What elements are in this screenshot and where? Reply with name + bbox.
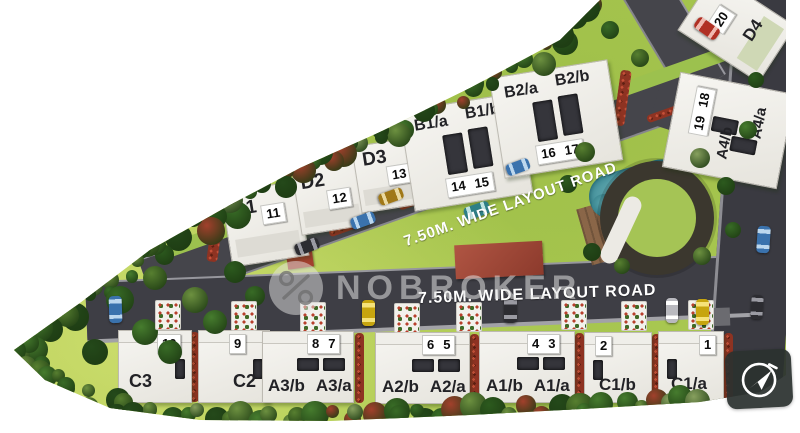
plot-A1: 4 3 A1/b A1/a xyxy=(479,331,575,403)
plot-number-text: 7 xyxy=(328,336,335,352)
tree-icon xyxy=(685,389,710,414)
plot-number-text: 12 xyxy=(331,189,348,207)
plot-label: B2/b xyxy=(554,67,591,90)
tree-icon xyxy=(540,37,552,49)
tree-icon xyxy=(131,254,144,267)
flower-planter xyxy=(561,300,587,330)
tree-icon xyxy=(375,131,388,144)
tree-icon xyxy=(82,384,95,397)
flower-planter xyxy=(155,300,181,330)
plot-number: 9 xyxy=(229,334,246,354)
plot-number-text: 2 xyxy=(600,338,607,354)
tree-icon xyxy=(82,339,108,365)
tree-icon xyxy=(57,377,75,395)
tree-icon xyxy=(505,60,518,73)
parking-slot xyxy=(297,358,319,371)
plot-number-text: 19 xyxy=(691,115,709,132)
parking-slot xyxy=(412,359,434,372)
flower-planter xyxy=(621,301,647,331)
plot-labels: A1/b A1/a xyxy=(486,376,570,396)
plot-number-text: 16 xyxy=(540,145,557,163)
plot-label: A1/b xyxy=(486,376,523,396)
flower-planter xyxy=(394,303,420,333)
navigation-arrow-icon xyxy=(735,355,783,403)
tree-icon xyxy=(548,22,574,48)
tree-icon xyxy=(158,340,182,364)
tree-icon xyxy=(291,158,316,183)
tree-icon xyxy=(190,403,204,417)
tree-icon xyxy=(143,266,167,290)
tree-icon xyxy=(275,176,296,197)
plot-label: C3 xyxy=(129,371,152,392)
tree-icon xyxy=(501,407,517,423)
plot-number: 4 3 xyxy=(527,334,560,354)
tree-icon xyxy=(203,310,227,334)
plot-number-text: 6 xyxy=(427,337,434,353)
plot-number-text: 4 xyxy=(532,336,539,352)
tree-icon xyxy=(243,185,257,199)
plot-number-text: 13 xyxy=(391,165,408,183)
tree-icon xyxy=(3,339,27,363)
car-icon xyxy=(109,296,123,323)
car-icon xyxy=(362,300,375,326)
tree-icon xyxy=(748,72,764,88)
parking-slot xyxy=(438,359,460,372)
tree-icon xyxy=(84,288,97,301)
tree-icon xyxy=(614,258,630,274)
parking-slot xyxy=(442,132,468,175)
tree-icon xyxy=(347,404,363,420)
tree-icon xyxy=(601,21,619,39)
tree-icon xyxy=(486,77,499,90)
parking-slot xyxy=(557,93,583,136)
plot-number-text: 1 xyxy=(704,337,711,353)
plot-number-text: 14 xyxy=(450,178,467,196)
tree-icon xyxy=(228,401,253,426)
parking-slot xyxy=(543,357,565,370)
tree-icon xyxy=(413,99,436,122)
plot-number-text: 11 xyxy=(265,205,281,223)
tree-icon xyxy=(326,405,339,418)
tree-icon xyxy=(563,4,588,29)
tree-icon xyxy=(464,78,483,97)
parking-slot xyxy=(323,358,345,371)
parking-slot xyxy=(467,126,493,169)
tree-icon xyxy=(693,247,711,265)
clubhouse-roof xyxy=(454,241,544,280)
tree-icon xyxy=(583,243,601,261)
tree-icon xyxy=(690,148,710,168)
flower-planter xyxy=(231,301,257,331)
plot-number-text: 15 xyxy=(473,174,490,192)
plot-A2: 6 5 A2/b A2/a xyxy=(375,332,470,404)
tree-icon xyxy=(389,405,409,425)
plot-number-text: 18 xyxy=(695,91,713,108)
plot-number-text: 8 xyxy=(312,336,319,352)
tree-icon xyxy=(739,121,757,139)
plot-B2: B2/a B2/b 16 17 xyxy=(489,59,623,179)
plot-label: C2 xyxy=(233,371,256,392)
plot-label: A2/a xyxy=(430,377,466,397)
plot-number-text: 3 xyxy=(548,336,555,352)
tree-icon xyxy=(617,392,638,413)
car-icon xyxy=(756,226,771,254)
plot-number-text: 9 xyxy=(234,336,241,352)
tree-icon xyxy=(182,287,208,313)
tree-icon xyxy=(387,123,411,147)
parking-slot xyxy=(517,357,539,370)
site-boundary: D1 11 D2 12 D3 13 B1/a B1/b 14 15 B2/a B… xyxy=(0,0,800,433)
tree-icon xyxy=(725,222,741,238)
plot-number: 11 xyxy=(260,202,287,225)
flowering-hedge xyxy=(355,333,364,403)
car-icon xyxy=(666,298,678,323)
plot-number: 1 xyxy=(699,335,716,355)
plot-C2: 9 C2 xyxy=(198,330,270,403)
tree-icon xyxy=(575,142,595,162)
tree-icon xyxy=(410,404,423,417)
plot-number: 6 5 xyxy=(422,335,455,355)
plot-label: A1/a xyxy=(534,376,570,396)
tree-icon xyxy=(143,402,157,416)
tree-icon xyxy=(516,395,536,415)
tree-icon xyxy=(121,402,145,426)
plot-number: 8 7 xyxy=(307,334,340,354)
site-plan-canvas: D1 11 D2 12 D3 13 B1/a B1/b 14 15 B2/a B… xyxy=(0,0,800,433)
plot-C3: 10 C3 xyxy=(118,330,192,403)
plot-number-text: 5 xyxy=(443,337,450,353)
plot-A3: 8 7 A3/b A3/a xyxy=(262,331,354,403)
tree-icon xyxy=(301,401,328,428)
tree-icon xyxy=(717,177,735,195)
tree-icon xyxy=(126,270,139,283)
flower-planter xyxy=(300,302,326,332)
tree-icon xyxy=(182,206,203,227)
plot-labels: A2/b A2/a xyxy=(382,377,466,397)
car-icon xyxy=(750,295,764,320)
plot-labels: A3/b A3/a xyxy=(268,376,352,396)
plot-number: 2 xyxy=(595,336,612,356)
tree-icon xyxy=(162,407,184,429)
plot-label: A3/a xyxy=(316,376,352,396)
plot-label: D3 xyxy=(361,146,388,172)
plot-number: 12 xyxy=(326,187,353,211)
plot-number: 14 15 xyxy=(445,171,495,198)
plot-C1b: 2 C1/b xyxy=(584,332,652,403)
plot-label: A2/b xyxy=(382,377,419,397)
plot-label: B2/a xyxy=(503,80,539,103)
car-icon xyxy=(696,299,709,325)
tree-icon xyxy=(224,261,246,283)
plot-label: A3/b xyxy=(268,376,305,396)
tree-icon xyxy=(260,406,277,423)
roof-band xyxy=(235,230,301,258)
tree-icon xyxy=(589,392,613,416)
tree-icon xyxy=(78,397,99,418)
parking-slot xyxy=(532,99,558,142)
tree-icon xyxy=(631,49,649,67)
compass-button[interactable] xyxy=(725,348,794,409)
